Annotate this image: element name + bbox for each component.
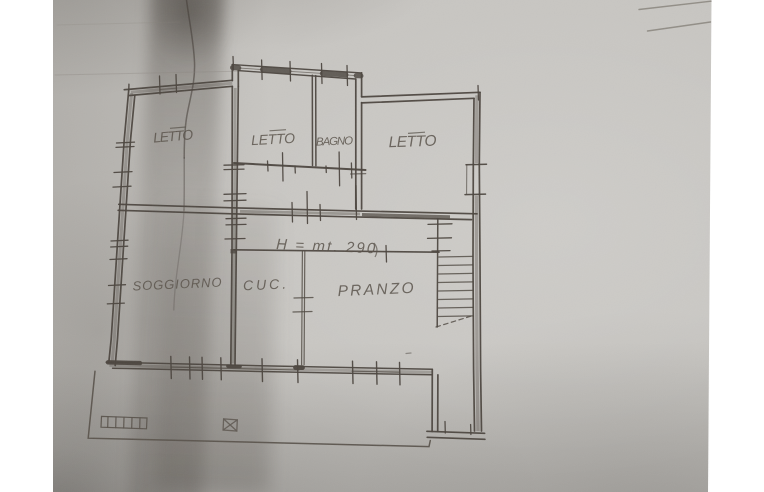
svg-text:PRANZO: PRANZO [337, 280, 414, 300]
svg-text:LETTO: LETTO [388, 133, 437, 152]
svg-text:H = mt. 290: H = mt. 290 [276, 236, 376, 257]
svg-text:LETTO: LETTO [251, 130, 296, 148]
svg-text:CUC.: CUC. [243, 276, 287, 294]
svg-text:SOGGIORNO: SOGGIORNO [132, 275, 222, 294]
svg-text:LETTO: LETTO [152, 126, 193, 145]
svg-text:BAGNO: BAGNO [316, 135, 353, 148]
